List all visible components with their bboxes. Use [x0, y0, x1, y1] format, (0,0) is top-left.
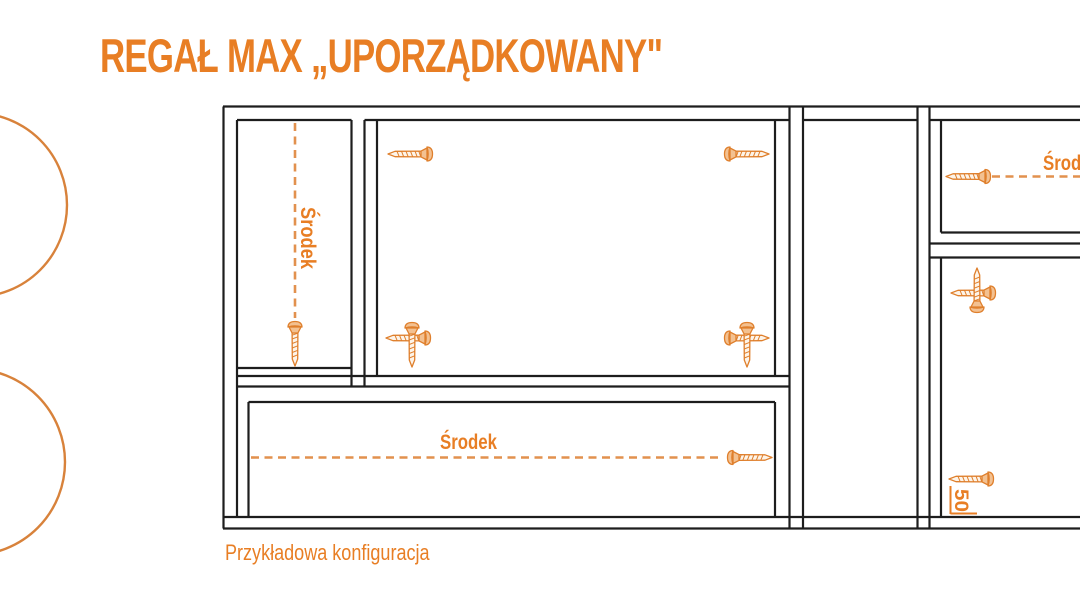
caption: Przykładowa konfiguracja: [225, 540, 430, 566]
screw-icon: [405, 323, 419, 368]
screw-icon: [951, 286, 996, 300]
screw-icon: [740, 323, 754, 368]
shelf-diagram: Środek Środek Środek 50: [0, 0, 1080, 607]
label-center-left: Środek: [296, 207, 321, 269]
screw-icon: [388, 147, 433, 161]
label-50: 50: [950, 489, 971, 512]
slide: REGAŁ MAX „UPORZĄDKOWANY": [0, 0, 1080, 607]
screw-icon: [725, 147, 770, 161]
screw-icon: [946, 170, 991, 184]
label-center-right: Środek: [1043, 150, 1080, 175]
screw-icon: [949, 472, 994, 486]
screw-icon: [728, 451, 773, 465]
screw-icon: [288, 322, 302, 367]
cabinet-frame: [223, 107, 1080, 529]
label-center-bottom: Środek: [440, 429, 497, 454]
screws: [288, 147, 996, 486]
